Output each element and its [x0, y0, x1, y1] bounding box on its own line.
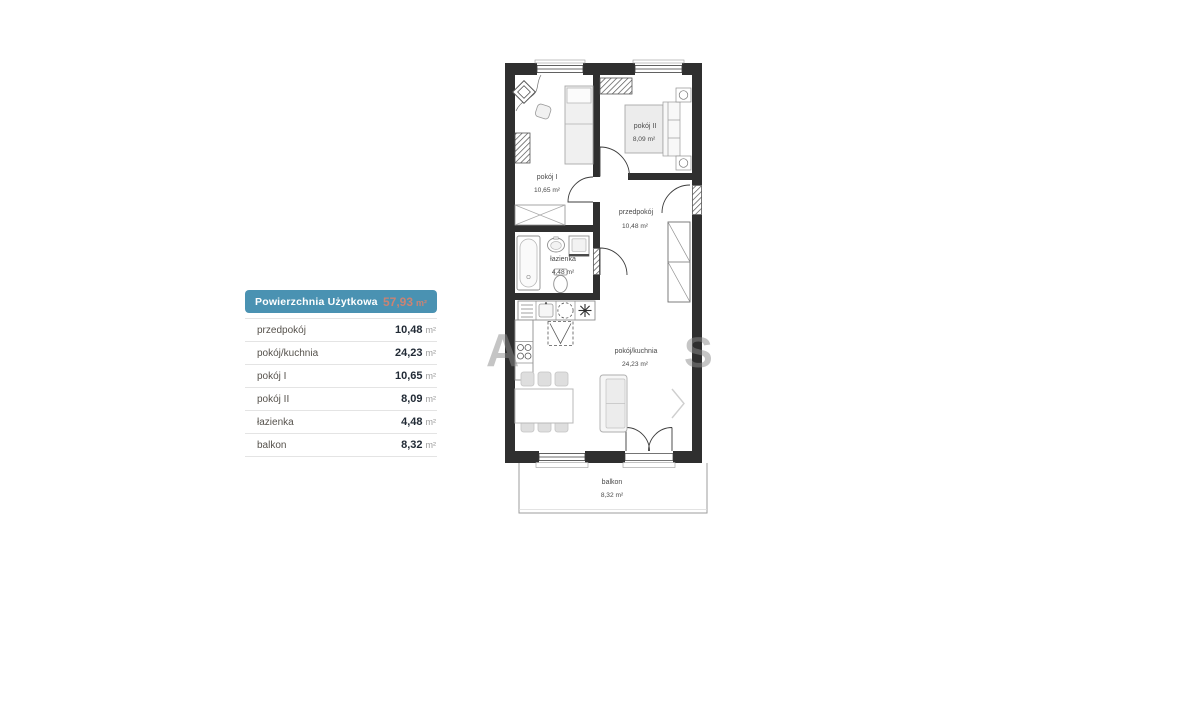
area-row-lazienka: łazienka 4,48m²: [245, 411, 437, 434]
nightstand-lamp-bottom: [676, 156, 691, 170]
appliance-dashed: [548, 322, 573, 346]
dining-set: [515, 372, 573, 432]
kitchen-sink: [539, 302, 553, 317]
area-row-balkon: balkon 8,32m²: [245, 434, 437, 457]
legend-title: Powierzchnia Użytkowa: [255, 296, 378, 308]
label-pokoj-i: pokój I: [537, 174, 558, 181]
area-row-pokoj-kuchnia: pokój/kuchnia 24,23m²: [245, 342, 437, 365]
room-label: łazienka: [257, 417, 294, 428]
kitchen: [515, 301, 595, 380]
room-value: 24,23m²: [395, 347, 436, 359]
desk: [513, 81, 536, 104]
nightstand-lamp-top: [676, 88, 691, 102]
room-label: pokój I: [257, 371, 286, 382]
room-label: balkon: [257, 440, 286, 451]
legend-total: 57,93 m²: [383, 295, 427, 309]
area-lazienka: 4,48 m²: [552, 269, 575, 276]
page: Powierzchnia Użytkowa 57,93 m² przedpokó…: [0, 0, 1200, 718]
room-value: 10,48m²: [395, 324, 436, 336]
wardrobe-hatched: [515, 133, 530, 163]
room-value: 4,48m²: [401, 416, 436, 428]
area-przedpokoj: 10,48 m²: [622, 223, 649, 230]
dining-table: [515, 389, 573, 423]
chair: [534, 103, 551, 120]
washing-machine: [569, 236, 589, 256]
room-label: przedpokój: [257, 325, 306, 336]
sink: [548, 237, 565, 252]
area-pokoj-ii: 8,09 m²: [633, 136, 656, 143]
label-pokoj-kuchnia: pokój/kuchnia: [615, 348, 658, 355]
balcony-french-door-right: [649, 428, 673, 452]
door-pokoj-i: [568, 177, 593, 202]
label-balkon: balkon: [602, 479, 623, 486]
balcony-french-door-left: [626, 428, 650, 452]
area-legend-panel: Powierzchnia Użytkowa 57,93 m² przedpokó…: [245, 290, 437, 457]
room-value: 8,09m²: [401, 393, 436, 405]
room-value: 8,32m²: [401, 439, 436, 451]
chevron-mark: [672, 389, 684, 418]
area-row-pokoj-i: pokój I 10,65m²: [245, 365, 437, 388]
door-leaf-lazienka: [594, 249, 600, 275]
round-element: [558, 303, 573, 318]
area-pokoj-i: 10,65 m²: [534, 187, 561, 194]
window-top-right: [633, 60, 684, 73]
bed-headboard: [663, 102, 680, 156]
room-label: pokój/kuchnia: [257, 348, 318, 359]
label-lazienka: łazienka: [550, 256, 576, 263]
legend-header: Powierzchnia Użytkowa 57,93 m²: [245, 290, 437, 313]
bathroom-fixtures: [517, 236, 589, 293]
hallway-wardrobe: [668, 222, 690, 302]
balcony-outline: [519, 463, 707, 513]
legend-rows: przedpokój 10,48m² pokój/kuchnia 24,23m²…: [245, 318, 437, 457]
window-top-left: [535, 60, 585, 73]
area-row-pokoj-ii: pokój II 8,09m²: [245, 388, 437, 411]
room-value: 10,65m²: [395, 370, 436, 382]
area-row-przedpokoj: przedpokój 10,48m²: [245, 319, 437, 342]
bed-single: [565, 86, 593, 164]
floor-plan-svg: pokój I 10,65 m² pokój II 8,09 m² przedp…: [495, 58, 715, 523]
stove-counter: [515, 320, 533, 380]
bathtub: [517, 236, 540, 290]
wardrobe-hatched: [600, 78, 632, 94]
balcony-door-frame: [623, 454, 675, 468]
furniture-pokoj-i: [513, 75, 593, 225]
label-przedpokoj: przedpokój: [619, 209, 654, 216]
legend-total-value: 57,93: [383, 295, 413, 309]
cooktop-star: [579, 304, 592, 317]
wardrobe-crossed: [515, 205, 565, 225]
door-leaf-entrance: [693, 186, 702, 215]
window-bottom: [536, 454, 588, 468]
floor-plan: pokój I 10,65 m² pokój II 8,09 m² przedp…: [495, 58, 715, 523]
room-label: pokój II: [257, 394, 289, 405]
area-pokoj-kuchnia: 24,23 m²: [622, 361, 649, 368]
area-balkon: 8,32 m²: [601, 492, 624, 499]
door-entrance-arc: [662, 185, 690, 213]
label-pokoj-ii: pokój II: [634, 123, 657, 130]
sofa: [600, 375, 627, 432]
legend-total-unit: m²: [416, 298, 427, 308]
door-lazienka: [600, 248, 627, 275]
